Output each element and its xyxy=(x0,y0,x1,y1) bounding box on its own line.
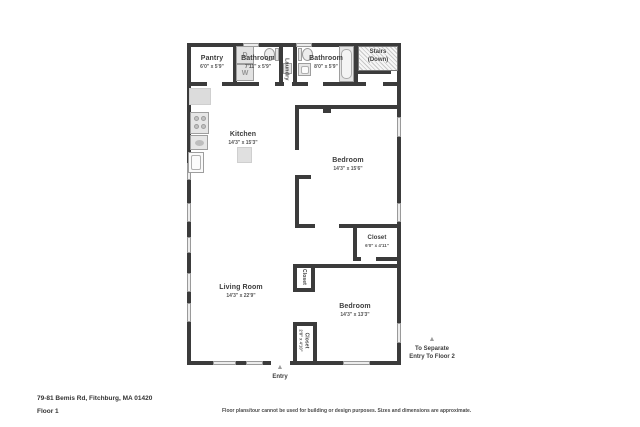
window-marker xyxy=(246,361,263,365)
room-label-bathroom-right: Bathroom 8'0" x 5'9" xyxy=(300,55,352,70)
wall-segment xyxy=(222,82,259,86)
window-marker xyxy=(296,43,312,47)
window-marker xyxy=(187,273,191,292)
kitchen-sink-basin xyxy=(191,155,201,170)
room-dims: 8'0" x 5'9" xyxy=(300,64,352,70)
room-dims: 7'11" x 5'9" xyxy=(232,64,284,70)
wall-segment xyxy=(295,105,299,150)
arrow-glyph: ▲ xyxy=(277,364,284,371)
window-marker xyxy=(187,237,191,253)
room-label-kitchen: Kitchen 14'3" x 15'3" xyxy=(203,131,283,146)
window-marker xyxy=(343,361,370,365)
entry-text: Entry xyxy=(272,374,287,380)
room-label-stairs: Stairs (Down) xyxy=(358,49,398,65)
separate-entry-line1: To Separate xyxy=(403,345,461,353)
room-name: Closet xyxy=(301,265,307,289)
room-subtitle: (Down) xyxy=(358,57,398,65)
room-label-living-room: Living Room 14'3" x 22'9" xyxy=(201,284,281,299)
property-address: 79-81 Bemis Rd, Fitchburg, MA 01420 xyxy=(37,395,152,402)
wall-segment xyxy=(187,82,207,86)
room-name: Closet xyxy=(352,235,402,243)
room-dims: 14'3" x 15'6" xyxy=(308,166,388,172)
washer-letter: W xyxy=(242,70,249,77)
burner-icon xyxy=(201,124,206,129)
room-name: Living Room xyxy=(201,284,281,293)
door-jamb xyxy=(299,175,311,179)
separate-entry-line2: Entry To Floor 2 xyxy=(403,353,461,361)
window-marker xyxy=(187,203,191,222)
wall-segment xyxy=(293,264,401,268)
room-name: Bathroom xyxy=(232,55,284,64)
room-name: Bedroom xyxy=(315,303,395,312)
floor-label: Floor 1 xyxy=(37,408,59,415)
room-name: Bathroom xyxy=(300,55,352,64)
room-name: Laundry xyxy=(283,51,290,87)
entry-arrow-icon: ▲ xyxy=(270,364,290,371)
room-name: Pantry xyxy=(186,55,238,64)
wall-segment xyxy=(295,105,401,109)
wall-segment xyxy=(293,43,297,86)
separate-entry-label: To Separate Entry To Floor 2 xyxy=(403,345,461,361)
room-dims: 14'3" x 22'9" xyxy=(201,293,281,299)
window-marker xyxy=(397,117,401,137)
entry-label: Entry xyxy=(260,373,300,381)
room-dims: 2'8" x 4'10" xyxy=(298,322,303,360)
wall-segment xyxy=(339,224,401,228)
window-marker xyxy=(187,303,191,322)
kitchen-island xyxy=(237,147,252,163)
wall-segment xyxy=(383,82,401,86)
wall-segment xyxy=(295,175,299,228)
counter xyxy=(189,88,211,105)
wall-segment xyxy=(295,224,315,228)
room-label-closet-mid: Closet xyxy=(301,265,307,289)
burner-icon xyxy=(194,116,199,121)
room-dims: 14'3" x 15'3" xyxy=(203,140,283,146)
window-marker xyxy=(397,203,401,222)
disclaimer-text: Floor plans/tour cannot be used for buil… xyxy=(222,408,471,414)
room-label-laundry: Laundry xyxy=(283,51,290,87)
wall-segment xyxy=(323,82,366,86)
arrow-glyph: ▲ xyxy=(429,336,436,343)
door-jamb xyxy=(323,109,331,113)
room-label-bedroom-top: Bedroom 14'3" x 15'6" xyxy=(308,157,388,172)
room-label-bathroom-left: Bathroom 7'11" x 5'9" xyxy=(232,55,284,70)
kitchen-sink-icon xyxy=(188,152,204,173)
room-label-pantry: Pantry 6'0" x 5'9" xyxy=(186,55,238,70)
wall-segment xyxy=(376,257,401,261)
room-name: Stairs xyxy=(358,49,398,57)
wall-segment xyxy=(293,322,297,365)
room-name: Closet xyxy=(304,322,310,360)
room-dims: 6'0" x 4'11" xyxy=(352,243,402,249)
room-label-closet-bottom: Closet 2'8" x 4'10" xyxy=(298,322,309,360)
room-dims: 6'0" x 5'9" xyxy=(186,64,238,70)
wall-segment xyxy=(313,322,317,365)
room-dims: 14'3" x 13'3" xyxy=(315,312,395,318)
separate-entry-arrow-icon: ▲ xyxy=(422,336,442,343)
room-name: Kitchen xyxy=(203,131,283,140)
window-marker xyxy=(213,361,236,365)
wall-segment xyxy=(292,82,308,86)
room-label-bedroom-bottom: Bedroom 14'3" x 13'3" xyxy=(315,303,395,318)
burner-icon xyxy=(194,124,199,129)
floor-plan-page: Stairs (Down) D W Pantry 6'0" x 5'9" B xyxy=(0,0,640,427)
window-marker xyxy=(397,323,401,343)
room-name: Bedroom xyxy=(308,157,388,166)
wall-segment xyxy=(353,257,361,261)
burner-icon xyxy=(201,116,206,121)
room-label-closet-right: Closet 6'0" x 4'11" xyxy=(352,235,402,248)
